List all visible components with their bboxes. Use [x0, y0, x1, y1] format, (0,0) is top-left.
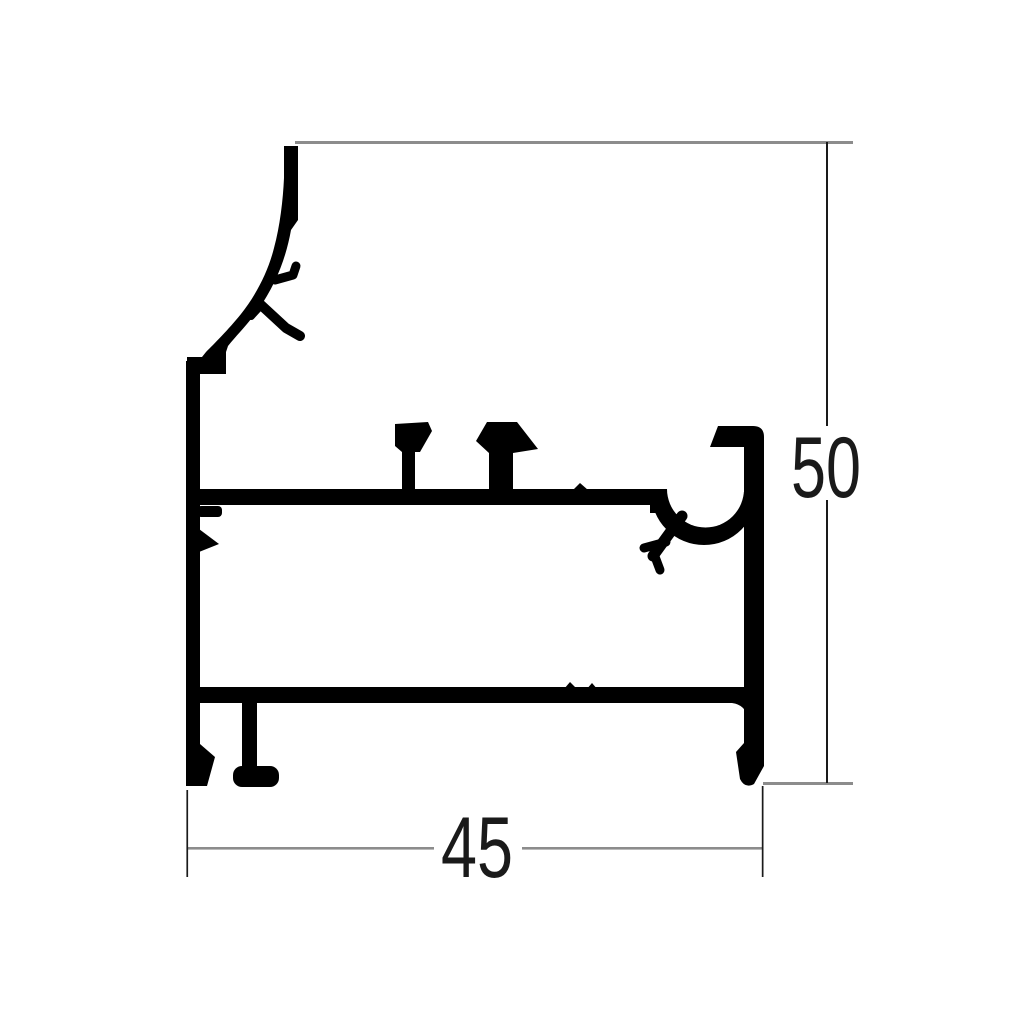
width-right-extension-line — [762, 786, 764, 877]
width-dimension-label: 45 — [441, 800, 513, 896]
middle-web — [198, 489, 670, 505]
drawing-canvas: 50 45 — [0, 0, 1024, 1024]
height-dimension-label: 50 — [791, 420, 861, 516]
bead-stub-1 — [395, 422, 432, 490]
bottom-web-tooth-1 — [564, 682, 577, 689]
bottom-leg-stem — [242, 700, 257, 772]
left-wall-stub — [197, 506, 222, 517]
gasket-fin-lower — [260, 304, 300, 336]
bottom-leg-foot — [233, 766, 279, 787]
top-extension-line — [295, 141, 853, 144]
bottom-web-tooth-2 — [586, 683, 598, 690]
left-wall — [186, 361, 215, 786]
gasket-leg — [187, 146, 298, 374]
height-bottom-extension-line — [763, 782, 853, 785]
bottom-web — [198, 687, 750, 703]
bead-stub-2 — [476, 422, 538, 490]
width-left-extension-line — [186, 790, 188, 877]
profile-cross-section-drawing: 50 45 — [0, 0, 1024, 1024]
middle-web-bump — [573, 483, 588, 490]
left-wall-tooth — [199, 529, 219, 552]
